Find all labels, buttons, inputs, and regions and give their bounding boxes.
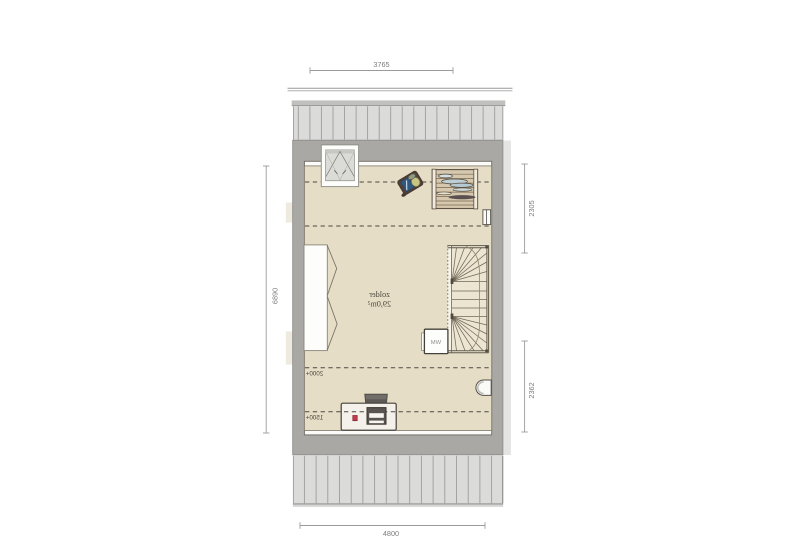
svg-text:6890: 6890 <box>271 288 280 304</box>
svg-text:1500+: 1500+ <box>305 415 323 422</box>
svg-text:3765: 3765 <box>373 60 389 69</box>
svg-text:2000+: 2000+ <box>305 371 323 378</box>
svg-text:29,0m²: 29,0m² <box>367 300 391 309</box>
svg-text:2305: 2305 <box>527 200 536 216</box>
svg-text:WM: WM <box>431 340 441 346</box>
svg-text:2362: 2362 <box>527 382 536 398</box>
svg-text:zolder: zolder <box>369 290 390 299</box>
svg-text:4800: 4800 <box>383 529 399 538</box>
